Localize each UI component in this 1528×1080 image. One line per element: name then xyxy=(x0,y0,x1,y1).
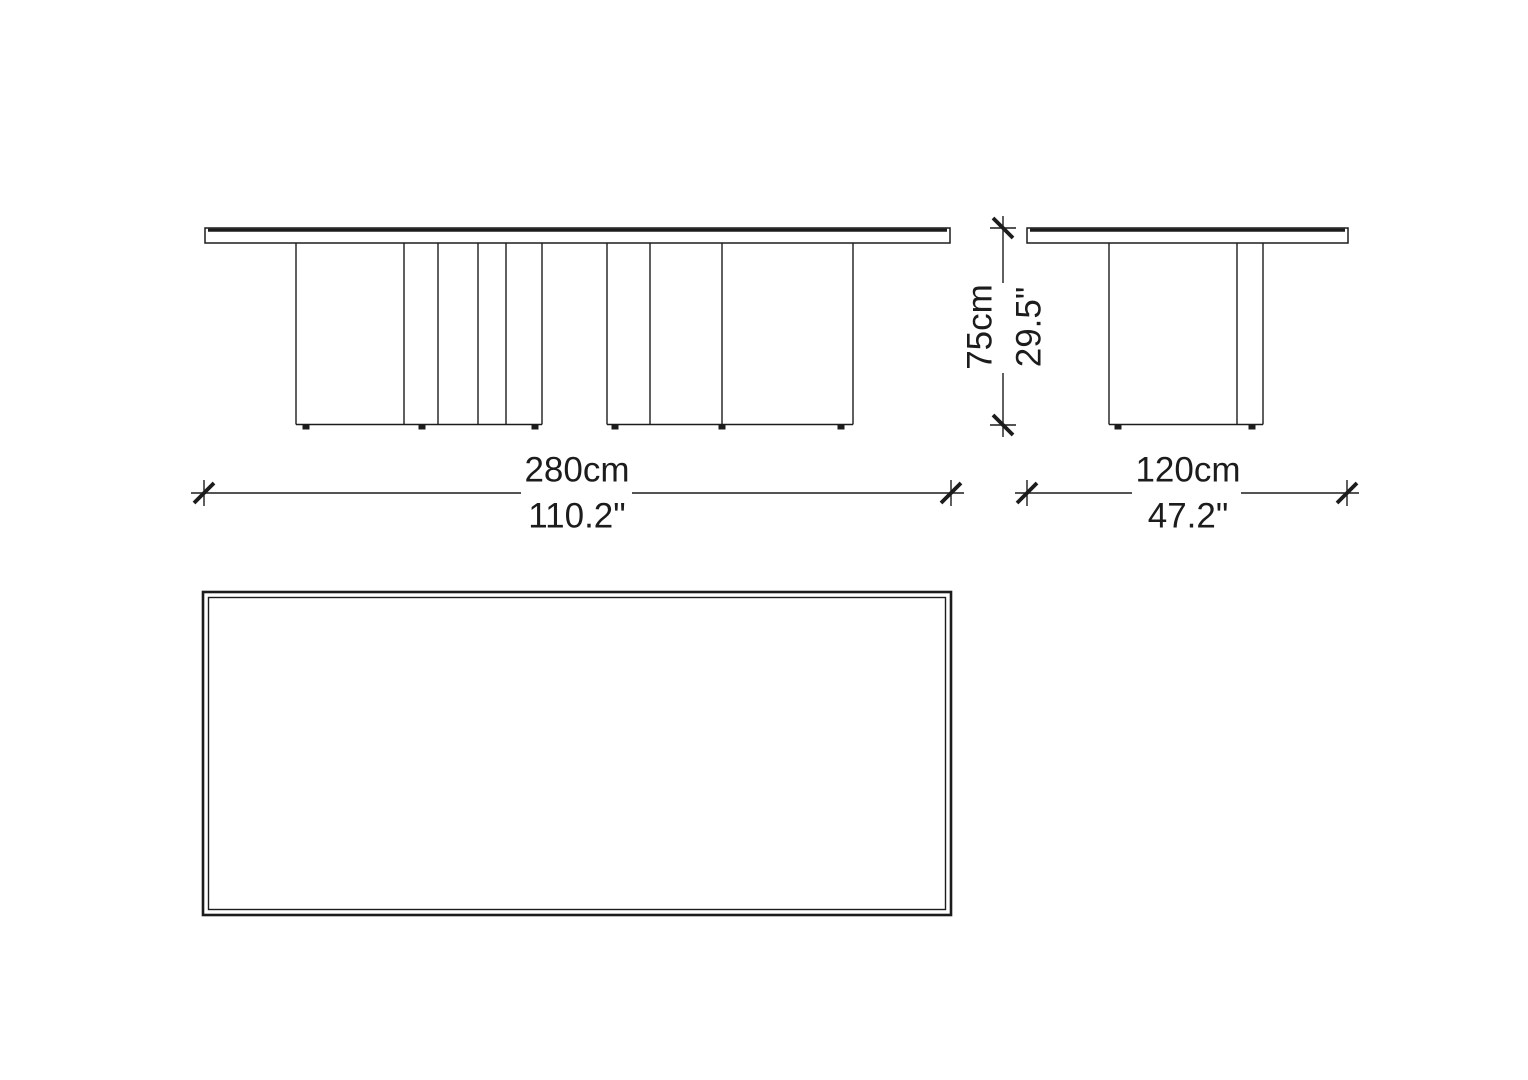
front-elevation-view xyxy=(205,228,950,430)
depth-dimension-imperial-label: 47.2" xyxy=(1148,499,1229,534)
foot-glide xyxy=(719,425,726,430)
side-elevation-view xyxy=(1027,228,1348,430)
foot-glide xyxy=(838,425,845,430)
foot-glide xyxy=(1249,425,1256,430)
drawing-linework xyxy=(0,0,1528,1080)
plan-view xyxy=(203,592,951,915)
foot-glide xyxy=(303,425,310,430)
side-pedestal xyxy=(1109,243,1263,430)
foot-glide xyxy=(419,425,426,430)
technical-drawing-canvas: 280cm 110.2" 120cm 47.2" 75cm 29.5" xyxy=(0,0,1528,1080)
front-left-pedestal xyxy=(296,243,542,430)
height-dimension-imperial-label: 29.5" xyxy=(1012,287,1047,368)
width-dimension-imperial-label: 110.2" xyxy=(528,499,625,534)
plan-inner-edge xyxy=(209,598,946,910)
foot-glide xyxy=(532,425,539,430)
plan-outer-edge xyxy=(203,592,951,915)
foot-glide xyxy=(612,425,619,430)
height-dimension-metric-label: 75cm xyxy=(963,284,998,370)
width-dimension-metric-label: 280cm xyxy=(524,453,629,488)
depth-dimension-metric-label: 120cm xyxy=(1135,453,1240,488)
foot-glide xyxy=(1115,425,1122,430)
front-right-pedestal xyxy=(607,243,853,430)
